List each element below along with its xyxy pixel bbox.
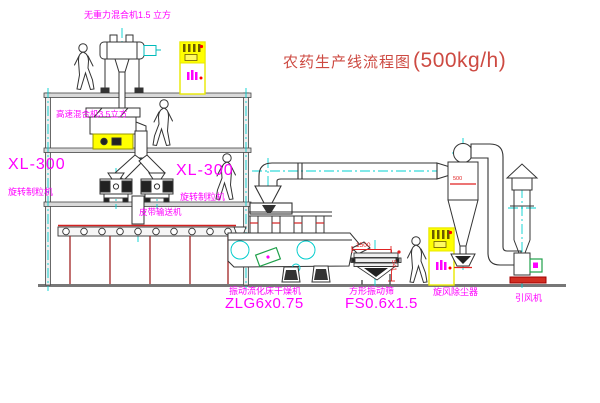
dimension-screen-length: 1500 xyxy=(356,243,370,250)
label-fan: 引风机 xyxy=(515,294,542,303)
granulator-right xyxy=(141,173,173,202)
indicator-light-icon xyxy=(200,45,203,48)
spring-mounts-icon xyxy=(250,216,324,233)
title-capacity: (500kg/h) xyxy=(413,49,506,73)
label-granulator-name-right: 旋转制粒机 xyxy=(180,193,225,202)
label-granulator-model-left: XL-300 xyxy=(8,157,66,173)
label-dryer-model: ZLG6x0.75 xyxy=(225,296,304,311)
label-belt-conveyor: 皮带输送机 xyxy=(139,208,182,217)
label-high-speed-mixer: 高速混合机3.5立方 xyxy=(56,110,127,119)
human-figure-1 xyxy=(75,44,95,90)
control-cabinet-top xyxy=(180,42,205,94)
fluid-bed-dryer xyxy=(228,212,370,282)
label-gravity-mixer: 无重力混合机1.5 立方 xyxy=(84,11,171,20)
belt-conveyor xyxy=(58,226,246,285)
flow-diagram-canvas: 农药生产线流程图 (500kg/h) 无重力混合机1.5 立方 高速混合机3.5… xyxy=(0,0,600,403)
label-granulator-name-left: 旋转制粒机 xyxy=(8,188,53,197)
label-cyclone: 旋风除尘器 xyxy=(433,288,478,297)
mixer-motor-icon xyxy=(144,46,161,56)
human-figure-4 xyxy=(408,237,428,283)
diagram-title: 农药生产线流程图 (500kg/h) xyxy=(283,49,506,73)
mixer-drive-icon xyxy=(101,138,107,144)
human-figure-2 xyxy=(153,100,173,146)
dimension-cyclone: 500 xyxy=(453,177,462,183)
indicator-light-icon xyxy=(449,231,452,234)
label-screen-model: FS0.6x1.5 xyxy=(345,296,418,311)
title-text: 农药生产线流程图 xyxy=(283,51,411,72)
induced-draft-fan xyxy=(510,253,546,283)
control-cabinet-ground xyxy=(429,228,454,285)
label-granulator-model-right: XL-300 xyxy=(176,163,234,179)
dimension-screen-height: 541 xyxy=(390,260,397,271)
